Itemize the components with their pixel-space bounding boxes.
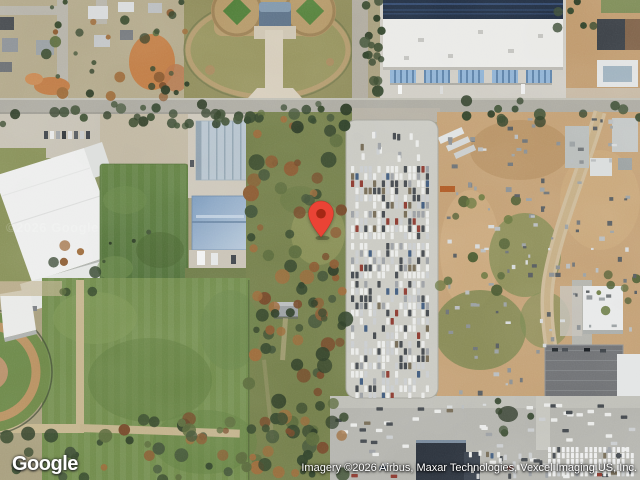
terrain-grain [0, 0, 640, 480]
satellite-imagery [0, 0, 640, 480]
google-logo[interactable]: Google [12, 453, 78, 476]
pin-shadow [316, 236, 330, 240]
pin-body [309, 201, 334, 237]
map-pin-icon[interactable] [307, 200, 336, 240]
imagery-watermark: ©2026 Google [6, 220, 99, 235]
pin-dot [316, 209, 326, 219]
attribution-text: Imagery ©2026 Airbus, Maxar Technologies… [301, 462, 637, 474]
map-viewport[interactable]: ©2026 Google Google Imagery ©2026 Airbus… [0, 0, 640, 480]
